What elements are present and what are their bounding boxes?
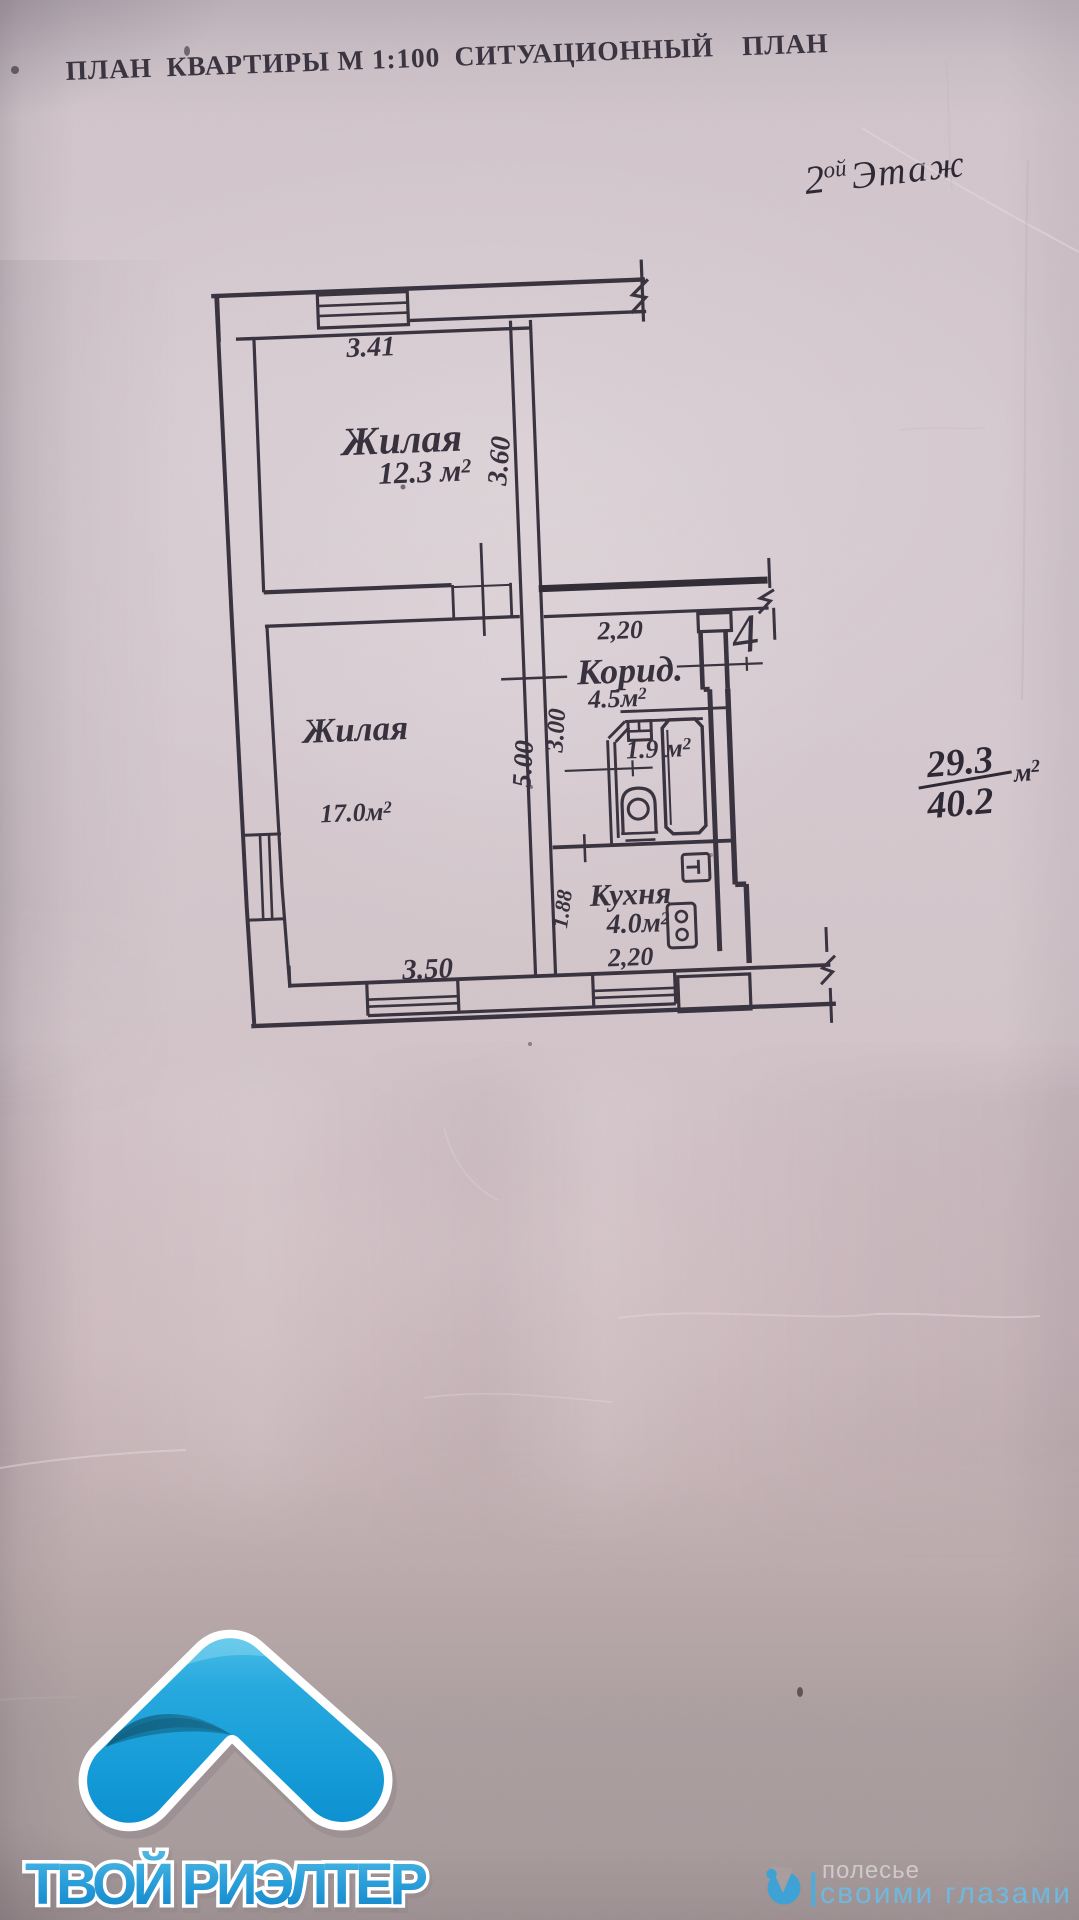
svg-text:4.5м2: 4.5м2 <box>586 683 647 714</box>
svg-text:3.60: 3.60 <box>482 435 517 487</box>
svg-text:ТВОЙ РИЭЛТЕР: ТВОЙ РИЭЛТЕР <box>25 1852 430 1917</box>
svg-text:40.2: 40.2 <box>925 780 996 828</box>
svg-text:17.0м2: 17.0м2 <box>320 797 393 829</box>
svg-text:2,20: 2,20 <box>596 615 644 646</box>
svg-text:12.3 м2: 12.3 м2 <box>378 452 473 491</box>
svg-text:2,20: 2,20 <box>606 942 654 973</box>
svg-text:3.00: 3.00 <box>541 707 571 754</box>
svg-text:3.50: 3.50 <box>401 952 454 986</box>
svg-text:29.3: 29.3 <box>924 739 995 787</box>
svg-text:своими глазами: своими глазами <box>820 1877 1070 1910</box>
svg-text:3.41: 3.41 <box>345 331 396 364</box>
svg-text:Жилая: Жилая <box>300 708 409 751</box>
svg-text:4.0м2: 4.0м2 <box>605 907 670 940</box>
svg-text:1.88: 1.88 <box>547 888 577 930</box>
svg-text:1.9 м2: 1.9 м2 <box>625 733 692 765</box>
svg-text:5.00: 5.00 <box>506 739 539 789</box>
